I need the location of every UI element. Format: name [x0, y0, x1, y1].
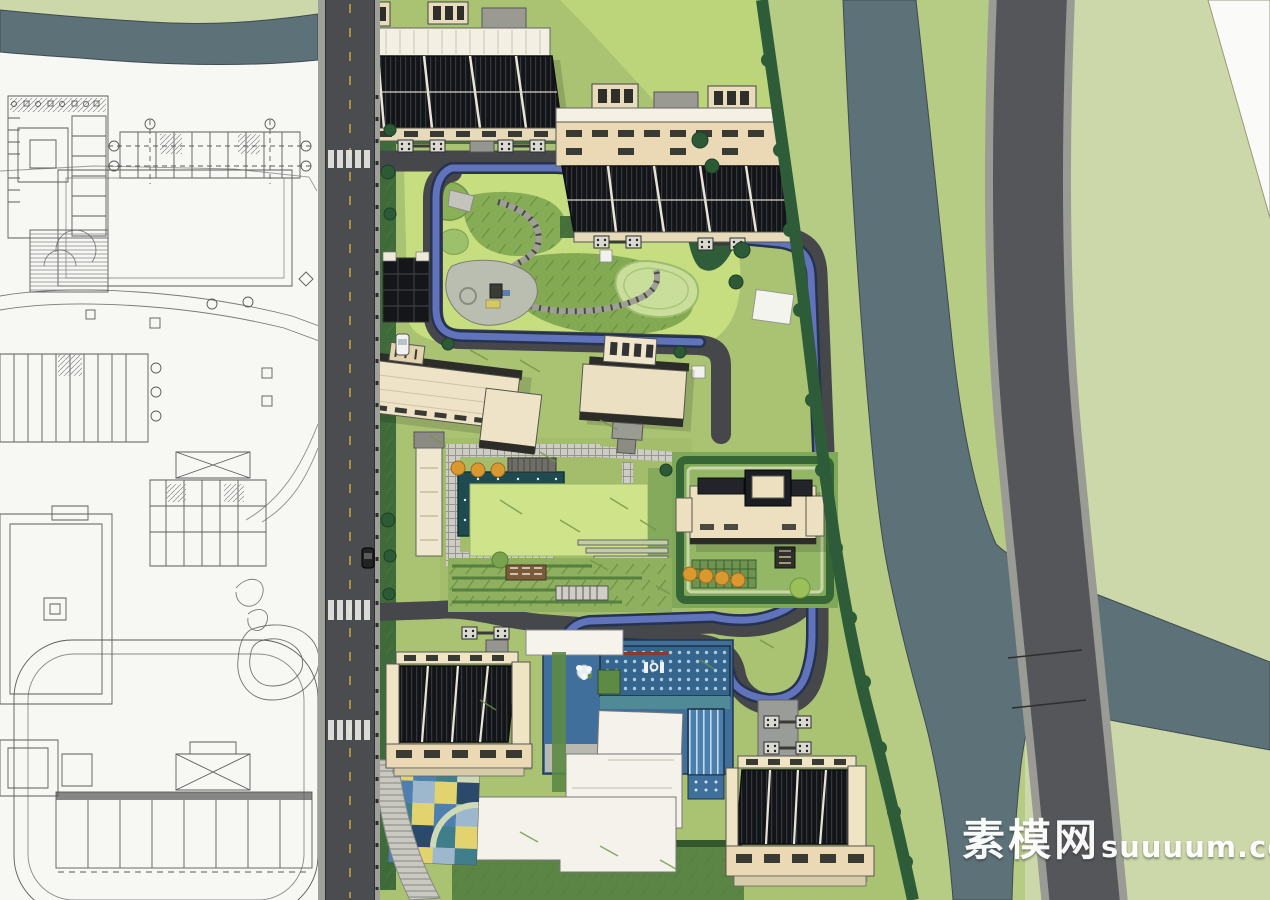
tower-building-sw [386, 652, 532, 776]
siteplan-canvas [0, 0, 1270, 900]
northwest-creek [0, 0, 318, 64]
masterplan-render: 素模网suuuum.com [0, 0, 1270, 900]
dark-car [362, 548, 374, 568]
tower-building-ne [556, 84, 802, 242]
white-court [752, 290, 794, 325]
ladder-bench [556, 586, 608, 600]
lap-pool [688, 709, 724, 775]
clubhouse-canopy [526, 630, 623, 655]
tower-building-se [726, 756, 874, 886]
white-car [396, 334, 409, 355]
pergola [508, 458, 556, 472]
west-road [318, 0, 380, 900]
building-courtyard-slab [414, 432, 444, 556]
building-villa-east [676, 470, 826, 552]
trellis-carport [383, 252, 429, 322]
